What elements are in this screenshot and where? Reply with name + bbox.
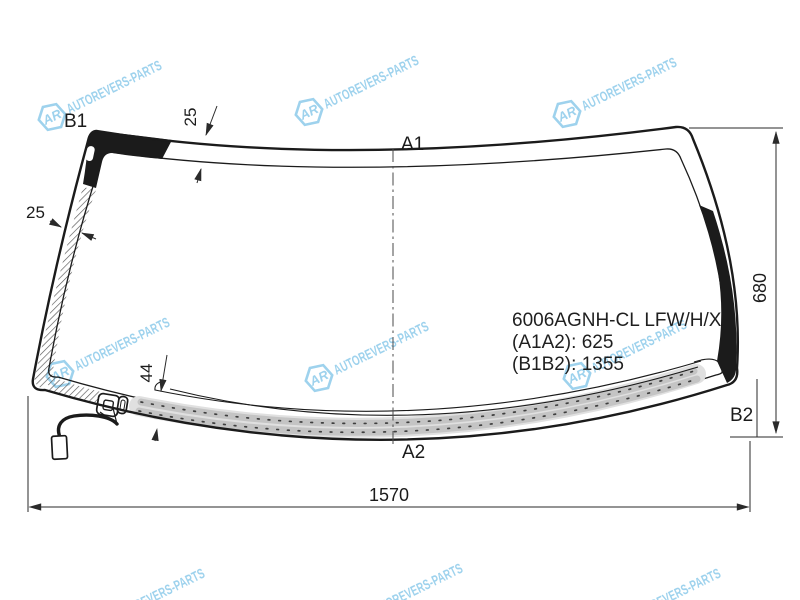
hatched-frit-band-left xyxy=(35,187,105,404)
dim-text-44: 44 xyxy=(137,364,156,383)
part-dim-b1b2: (B1B2): 1355 xyxy=(512,354,624,375)
heater-assembly xyxy=(139,359,722,432)
heater-wire xyxy=(59,415,117,436)
black-frit-band-right xyxy=(699,205,737,383)
part-number: 6006AGNH-CL LFW/H/X xyxy=(512,310,722,331)
label-b1: B1 xyxy=(64,111,87,132)
dim-text-top-25: 25 xyxy=(181,108,200,127)
dim-text-680: 680 xyxy=(750,273,770,303)
label-a1: A1 xyxy=(401,134,424,155)
label-a2: A2 xyxy=(402,442,425,463)
wire-plug xyxy=(51,436,67,460)
dim-text-left-25: 25 xyxy=(26,203,45,222)
dim-text-1570: 1570 xyxy=(369,485,409,505)
part-info-block: 6006AGNH-CL LFW/H/X (A1A2): 625 (B1B2): … xyxy=(512,310,722,375)
label-b2: B2 xyxy=(730,405,753,426)
part-dim-a1a2: (A1A2): 625 xyxy=(512,332,613,353)
diagram-canvas: AR AUTOREVERS-PARTS xyxy=(0,0,800,600)
windshield-diagram: AR AUTOREVERS-PARTS xyxy=(0,0,800,600)
dimension-glass-height: 680 xyxy=(689,128,783,437)
